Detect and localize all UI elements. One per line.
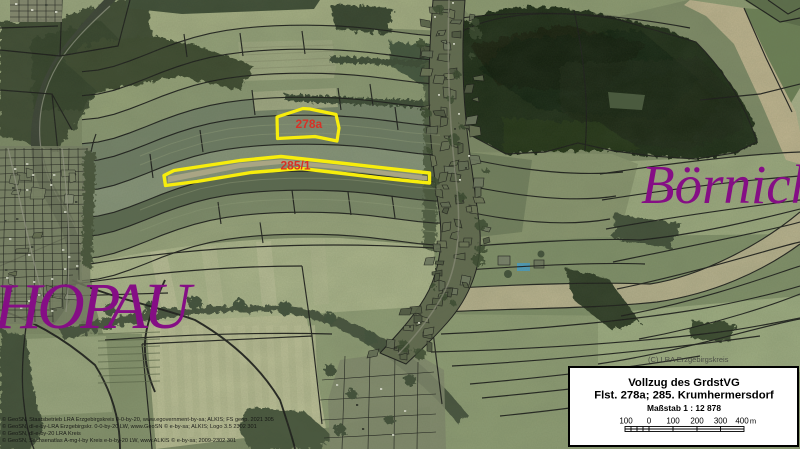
svg-text:Börnichen: Börnichen — [641, 154, 800, 215]
svg-text:© GeoSN, Staatsbetrieb LRA Erz: © GeoSN, Staatsbetrieb LRA Erzgebirgskre… — [2, 416, 274, 423]
svg-text:m: m — [750, 417, 756, 426]
svg-text:© GeoSN, Sachsenatlas A-mg-l-b: © GeoSN, Sachsenatlas A-mg-l-by Kreis e-… — [2, 437, 236, 444]
svg-text:0: 0 — [647, 417, 652, 426]
svg-text:HOPAU: HOPAU — [0, 270, 195, 343]
svg-text:© GeoSN, dl-e-by-20 LRA Kreis: © GeoSN, dl-e-by-20 LRA Kreis — [2, 430, 81, 437]
svg-text:400: 400 — [735, 417, 749, 426]
svg-text:285/1: 285/1 — [281, 159, 311, 173]
svg-text:© GeoSN, dl-e-by-LRA Erzgebirg: © GeoSN, dl-e-by-LRA Erzgebirgskr. 0-0-b… — [2, 423, 257, 430]
svg-text:200: 200 — [690, 417, 704, 426]
svg-text:Vollzug des GrdstVG: Vollzug des GrdstVG — [628, 377, 740, 389]
svg-text:278a: 278a — [296, 117, 323, 131]
svg-text:100: 100 — [666, 417, 680, 426]
svg-text:Flst. 278a; 285. Krumhermersdo: Flst. 278a; 285. Krumhermersdorf — [594, 390, 774, 402]
svg-text:300: 300 — [714, 417, 728, 426]
svg-text:(C) LRA Erzgebirgskreis: (C) LRA Erzgebirgskreis — [648, 355, 729, 364]
svg-text:Maßstab 1 : 12 878: Maßstab 1 : 12 878 — [647, 403, 721, 413]
svg-text:100: 100 — [619, 417, 633, 426]
